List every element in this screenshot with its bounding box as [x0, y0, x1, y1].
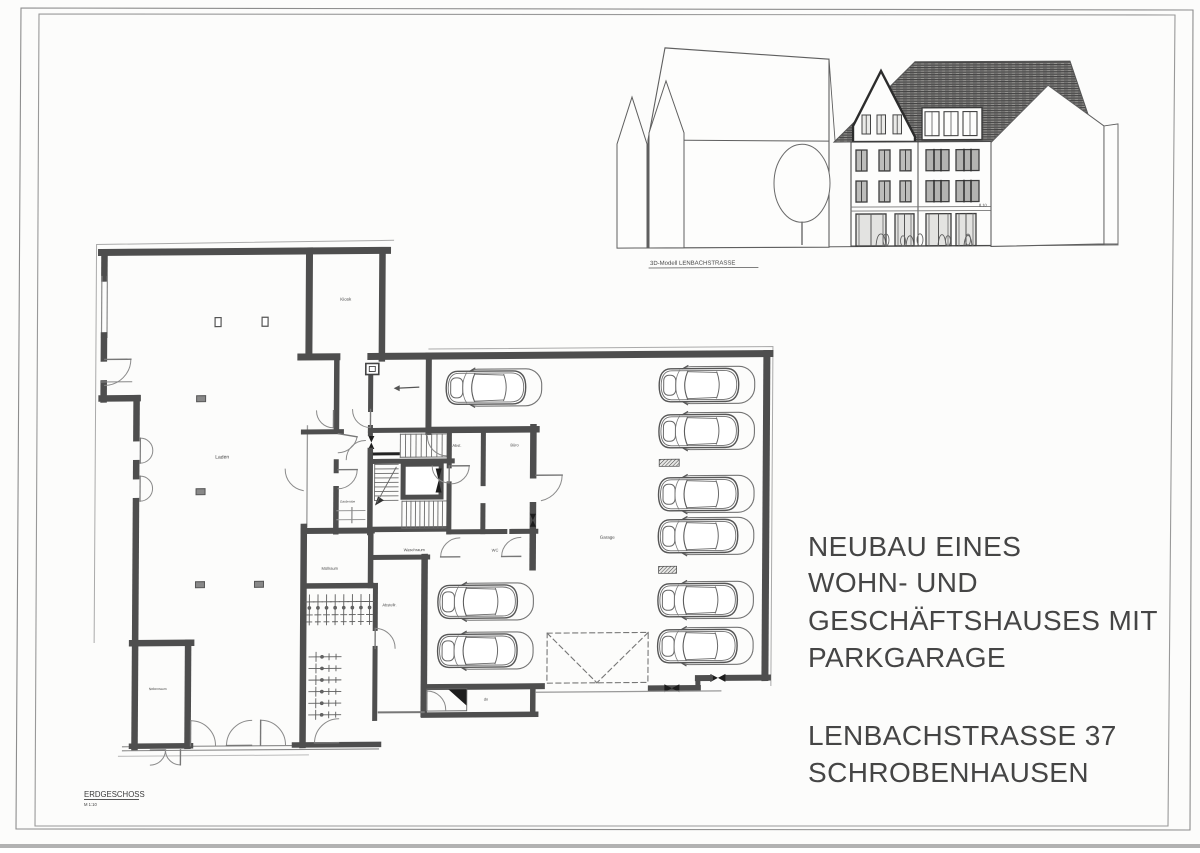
svg-text:Garderobe: Garderobe [340, 500, 355, 504]
svg-text:Abst.: Abst. [452, 443, 461, 448]
svg-text:SCHROBENHAUSEN: SCHROBENHAUSEN [808, 757, 1089, 788]
svg-text:M 1:10: M 1:10 [84, 802, 97, 807]
svg-text:dn: dn [484, 697, 488, 702]
svg-text:Kiosk: Kiosk [340, 297, 352, 302]
svg-text:PARKGARAGE: PARKGARAGE [808, 642, 1006, 673]
svg-text:Büro: Büro [510, 442, 519, 447]
svg-text:8.10: 8.10 [979, 202, 988, 207]
svg-text:WOHN- UND: WOHN- UND [808, 567, 978, 598]
svg-text:Waschraum: Waschraum [404, 547, 426, 552]
svg-text:3D-Modell LENBACHSTRASSE: 3D-Modell LENBACHSTRASSE [650, 261, 735, 267]
svg-text:ERDGESCHOSS: ERDGESCHOSS [84, 790, 145, 799]
svg-text:Garage: Garage [600, 535, 616, 540]
svg-text:Müllraum: Müllraum [322, 566, 339, 571]
svg-text:Abstellr.: Abstellr. [382, 602, 396, 607]
svg-text:Nebenraum: Nebenraum [149, 687, 167, 691]
svg-text:GESCHÄFTSHAUSES MIT: GESCHÄFTSHAUSES MIT [808, 605, 1158, 636]
svg-text:Laden: Laden [215, 455, 229, 461]
svg-text:LENBACHSTRASSE 37: LENBACHSTRASSE 37 [808, 720, 1117, 751]
svg-text:NEUBAU EINES: NEUBAU EINES [808, 531, 1021, 562]
svg-text:WC: WC [492, 548, 499, 553]
